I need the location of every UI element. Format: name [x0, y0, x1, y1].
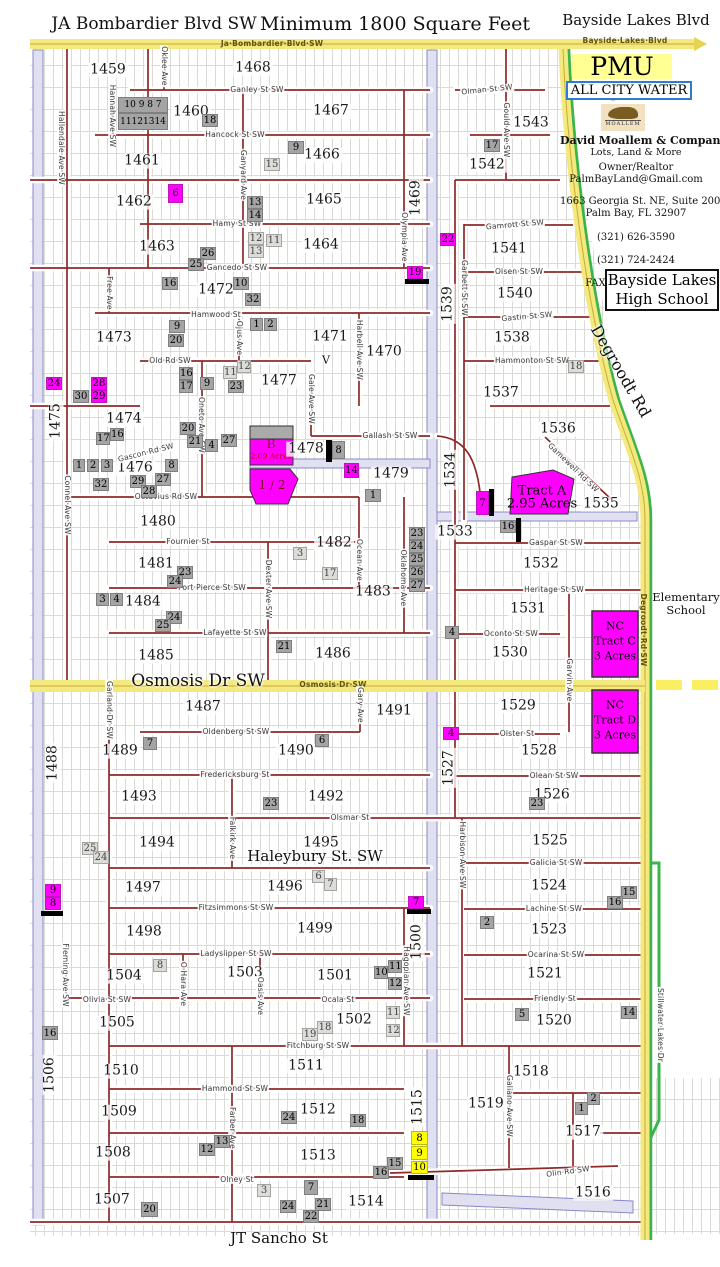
tract-c-l1: NC: [606, 621, 624, 634]
rail-crossing-bar: [408, 1175, 434, 1180]
rail-crossing-bar: [407, 909, 431, 914]
block-label-1518: 1518: [511, 1065, 551, 1080]
block-label-1525: 1525: [530, 834, 570, 849]
lot-chip: 23: [409, 527, 425, 540]
high-school-box: Bayside Lakes High School: [605, 269, 719, 311]
lot-chip: 15: [621, 886, 637, 899]
lot-chip: 21: [276, 640, 292, 653]
lot-chip: 27: [409, 579, 425, 592]
degroodt-big-label: Degroodt Rd: [587, 321, 655, 420]
street-label: Hammond·St·SW: [201, 1085, 269, 1093]
block-label-1523: 1523: [529, 923, 569, 938]
block-label-1532: 1532: [521, 557, 561, 572]
lot-chip: 17: [179, 380, 193, 393]
block-label-1498: 1498: [124, 925, 164, 940]
logo-word: MOALLEM: [605, 120, 641, 127]
block-label-1540: 1540: [495, 287, 535, 302]
street-label: Oconto·St·SW: [483, 630, 539, 638]
street-label: Gastin·St·SW: [500, 311, 554, 324]
block-label-1520: 1520: [534, 1014, 574, 1029]
lot-chip: 4: [110, 593, 123, 606]
lot-chip: 32: [245, 293, 261, 306]
block-label-1527: 1527: [442, 748, 457, 788]
lot-chip: 7: [143, 737, 157, 750]
lot-chip: 14: [621, 1006, 637, 1019]
block-label-1496: 1496: [265, 880, 305, 895]
lot-chip: 12: [237, 360, 251, 373]
street-label: Harbison·Ave·SW: [458, 820, 466, 889]
block-label-1513: 1513: [298, 1149, 338, 1164]
elementary-school-label: Elementary School: [646, 591, 720, 617]
lot-chip: 30: [73, 390, 89, 403]
street-label: Oklahoma·Ave: [399, 549, 407, 608]
block-label-1472: 1472: [196, 283, 236, 298]
lot-chip: 32: [93, 478, 109, 491]
street-label: Ocarina·St·SW: [527, 951, 585, 959]
lot-chip: 8: [153, 959, 167, 972]
lot-chip: 11: [266, 234, 282, 247]
street-label: Hannah·Ave·SW: [108, 84, 116, 148]
block-label-1462: 1462: [114, 195, 154, 210]
block-label-1464: 1464: [301, 238, 341, 253]
block-label-1487: 1487: [183, 700, 223, 715]
lot-chip: 17: [322, 567, 338, 580]
block-label-1542: 1542: [467, 158, 507, 173]
block-label-1521: 1521: [525, 967, 565, 982]
lot-chip: 24: [280, 1200, 296, 1213]
company-name: David Moallem & Companies: [560, 134, 712, 147]
lot-chip: 25: [155, 619, 171, 632]
street-label: Free·Ave: [105, 275, 113, 311]
moallem-logo: MOALLEM: [601, 104, 645, 131]
block-label-1541: 1541: [489, 242, 529, 257]
block-label-1529: 1529: [498, 699, 538, 714]
block-label-1524: 1524: [529, 879, 569, 894]
lot-chip: 10: [233, 277, 249, 290]
street-label: Fitchburg·St·SW: [286, 1042, 351, 1050]
street-label: Ocean·Ave: [355, 538, 363, 582]
street-label: Fleming·Ave·SW: [61, 942, 69, 1007]
tract-c-l2: Tract C: [594, 636, 636, 649]
block-label-1512: 1512: [298, 1103, 338, 1118]
block-label-1467: 1467: [311, 104, 351, 119]
lot-chip: 8: [332, 441, 345, 459]
lot-chip: 7: [304, 1180, 318, 1195]
lot-chip: 1: [73, 459, 85, 472]
street-label: Gale·Ave·SW: [307, 373, 315, 425]
street-label: Hamwood·St: [190, 311, 242, 319]
lot-chip: 27: [155, 473, 171, 486]
lot-chip: 24: [46, 377, 62, 390]
lot-chip: 4: [443, 727, 459, 740]
lot-chip: 3: [101, 459, 113, 472]
lot-chip: 12: [248, 232, 264, 245]
street-label: Fredericksburg·St: [200, 771, 271, 779]
street-label: Friendly·St: [533, 995, 577, 1003]
lot-chip: 12: [386, 1024, 400, 1037]
lot-chip: 10: [374, 966, 388, 979]
street-label: Falkirk·Ave: [228, 816, 236, 861]
street-label: Oasis·Ave: [256, 976, 264, 1016]
lot-chip: 8: [165, 459, 178, 472]
block-label-1471: 1471: [310, 330, 350, 345]
street-label: Old·Rd·SW: [148, 357, 191, 365]
lion-icon: [608, 107, 638, 119]
lot-chip: 12: [388, 977, 402, 990]
lot-chip: 7: [408, 896, 424, 909]
tract-d-l1: NC: [606, 700, 624, 713]
lot-chip: 16: [162, 277, 178, 290]
street-label: Stillwater·Lakes·Dr: [656, 987, 664, 1063]
block-label-1534: 1534: [444, 450, 459, 490]
lot-chip: 5: [515, 1008, 529, 1021]
lot-chip: 13: [214, 1135, 230, 1148]
lot-chip: 9: [169, 320, 185, 333]
owner-realtor: Owner/Realtor: [560, 162, 712, 173]
lot-chip: 16: [607, 896, 623, 909]
lot-chip: 6: [168, 184, 183, 203]
block-label-1519: 1519: [466, 1097, 506, 1112]
block-label-1510: 1510: [101, 1064, 141, 1079]
block-label-1463: 1463: [137, 240, 177, 255]
block-label-1473: 1473: [94, 331, 134, 346]
block-label-1483: 1483: [353, 585, 393, 600]
block-label-1535: 1535: [581, 497, 621, 512]
lot-chip: 3: [96, 593, 109, 606]
street-label: Oklee·Ave: [160, 45, 168, 87]
lot-chip: 10 9 8 7: [118, 97, 168, 113]
lot-chip: 3: [293, 547, 307, 560]
email: PalmBayLand@Gmail.com: [560, 174, 712, 185]
street-label: Fort·Pierce·St·SW: [177, 584, 247, 592]
block-label-1491: 1491: [374, 704, 414, 719]
lot-chip: 2: [87, 459, 99, 472]
lot-chip: 11121314: [118, 113, 168, 130]
lot-chip: 29: [91, 390, 107, 403]
street-label: Olsen·St·SW: [494, 268, 544, 276]
lot-chip: 7: [324, 878, 337, 891]
block-label-1468: 1468: [233, 61, 273, 76]
lot-chip: 26: [409, 566, 425, 579]
lot-chip: 24: [167, 575, 183, 588]
street-label: Ja·Bombardier·Blvd·SW: [220, 40, 324, 48]
block-label-1515: 1515: [411, 1087, 426, 1127]
lot-chip: 15: [387, 1157, 403, 1170]
lot-chip: 24: [409, 540, 425, 553]
street-label: Galicia·St·SW: [529, 859, 584, 867]
lot-chip: 16: [373, 1166, 389, 1179]
header-bayside-lakes: Bayside Lakes Blvd: [562, 11, 709, 29]
street-label: Olney·St: [219, 1176, 254, 1184]
lot-chip: 12: [199, 1143, 215, 1156]
block-label-1538: 1538: [492, 331, 532, 346]
block-label-1490: 1490: [276, 744, 316, 759]
lot-chip: 18: [317, 1021, 333, 1034]
lot-chip: 1: [365, 489, 381, 502]
lot-chip: 1: [575, 1102, 588, 1115]
block-label-1530: 1530: [490, 646, 530, 661]
block-label-1499: 1499: [295, 922, 335, 937]
lot-chip: 22: [303, 1210, 319, 1223]
lot-chip: 18: [568, 360, 584, 373]
lot-chip: 20: [180, 422, 196, 435]
lot-chip: 18: [202, 114, 218, 127]
plat-map: JA Bombardier Blvd SW Minimum 1800 Squar…: [0, 0, 720, 1267]
block-label-1528: 1528: [519, 744, 559, 759]
block-label-1488: 1488: [46, 743, 61, 783]
block-label-1461: 1461: [122, 154, 162, 169]
street-label: Gould·Ave·SW: [502, 101, 510, 158]
osmosis-big-label: Osmosis Dr SW: [131, 671, 265, 691]
tract-d-l2: Tract D: [594, 715, 636, 728]
block-label-1504: 1504: [104, 969, 144, 984]
block-label-1511: 1511: [286, 1059, 326, 1074]
street-label: Olster·St: [499, 730, 535, 738]
street-label: Ojus·Ave: [235, 320, 243, 356]
street-label: Connel·Ave·SW: [63, 474, 71, 535]
block-label-1485: 1485: [136, 649, 176, 664]
lot-chip: 8: [45, 897, 61, 910]
block-label-1493: 1493: [119, 790, 159, 805]
block-label-1507: 1507: [92, 1193, 132, 1208]
rail-crossing-bar: [326, 440, 332, 462]
street-label: O·Hara·Ave: [179, 961, 187, 1007]
lot-chip: 8: [411, 1131, 428, 1145]
rail-crossing-bar: [489, 489, 494, 516]
v-label: V: [322, 354, 330, 367]
jt-sancho-label: JT Sancho St: [230, 1229, 328, 1247]
lot-chip: 22: [440, 233, 456, 246]
tract-c-l3: 3 Acres: [594, 651, 636, 664]
street-label: Hagopian·Ave·SW: [402, 945, 410, 1016]
block-label-1502: 1502: [334, 1013, 374, 1028]
block-label-1481: 1481: [136, 557, 176, 572]
block-label-1531: 1531: [508, 602, 548, 617]
block-label-1539: 1539: [441, 284, 456, 324]
street-label: Gary·Ave: [356, 686, 364, 724]
lot-chip: 23: [529, 797, 545, 810]
lot-chip: 16: [500, 520, 516, 533]
block-label-1514: 1514: [346, 1195, 386, 1210]
street-label: Fitzsimmons·St·SW: [198, 904, 275, 912]
lot-chip: 11: [388, 960, 402, 973]
lot-chip: 6: [315, 734, 329, 747]
lot-chip: 11: [223, 366, 237, 379]
block-label-1465: 1465: [304, 193, 344, 208]
street-label: Gamrott·St·SW: [485, 218, 546, 231]
block-label-1479: 1479: [371, 467, 411, 482]
lot-chip: 10: [411, 1161, 428, 1174]
block-label-1509: 1509: [99, 1105, 139, 1120]
block-label-1484: 1484: [123, 595, 163, 610]
street-label: Garland·Dr·SW: [105, 680, 113, 740]
street-label: Olsmar·St: [330, 814, 371, 822]
block-label-1508: 1508: [93, 1146, 133, 1161]
rail-crossing-bar: [516, 518, 521, 542]
street-label: Harbell·Ave·SW: [355, 319, 363, 381]
street-label: Gaspar·St·SW: [528, 539, 584, 547]
pmu-title: PMU 31: [572, 54, 672, 79]
lot-chip: 1: [250, 318, 263, 331]
lot-chip: 9: [411, 1146, 428, 1160]
block-label-1536: 1536: [538, 422, 578, 437]
lot-chip: 18: [350, 1114, 366, 1127]
street-label: Olin·Rd·SW: [545, 1165, 591, 1180]
block-label-1500: 1500: [410, 922, 425, 962]
block-label-1480: 1480: [138, 515, 178, 530]
lot-chip: 28: [141, 485, 157, 498]
lot-chip: 20: [141, 1202, 158, 1217]
header-minimum-sqft: Minimum 1800 Square Feet: [260, 13, 530, 35]
block-label-1495: 1495: [301, 836, 341, 851]
street-label: Hancock·St·SW: [204, 131, 265, 139]
street-label: Ganley·St·SW: [229, 86, 284, 94]
street-label: Gancedo·St·SW: [206, 264, 269, 272]
lot-chip: 2: [587, 1092, 600, 1105]
lot-chip: 17: [96, 432, 110, 445]
street-label: Fournier·St: [165, 538, 210, 546]
lot-chip: 4: [205, 439, 218, 452]
block-label-1516: 1516: [573, 1186, 613, 1201]
street-label: Olean·St·SW: [529, 772, 580, 780]
block-label-1506: 1506: [43, 1055, 58, 1095]
block-label-1470: 1470: [364, 345, 404, 360]
block-label-1517: 1517: [563, 1125, 603, 1140]
lot-chip: 23: [263, 797, 279, 810]
street-label: Lafayette·St·SW: [202, 629, 267, 637]
lot-chip: 17: [484, 139, 500, 152]
block-label-1537: 1537: [481, 386, 521, 401]
lot-chip: 9: [200, 377, 214, 390]
block-label-1494: 1494: [137, 836, 177, 851]
block-label-1474: 1474: [104, 412, 144, 427]
lot-chip: 19: [302, 1028, 318, 1041]
block-label-1501: 1501: [315, 969, 355, 984]
lot-chip: 28: [91, 377, 107, 390]
block-label-1505: 1505: [97, 1016, 137, 1031]
header-ja-bombardier: JA Bombardier Blvd SW: [51, 14, 256, 34]
street-label: Olman·St·SW: [460, 83, 514, 97]
block-label-1482: 1482: [314, 536, 354, 551]
block-label-1466: 1466: [302, 148, 342, 163]
lot-chip: 25: [409, 553, 425, 566]
street-label: Garvin·Ave: [565, 658, 573, 703]
block-label-1486: 1486: [313, 647, 353, 662]
street-label: Hammonton·St·SW: [494, 357, 570, 365]
lot-chip: 13: [248, 245, 264, 258]
lot-chip: 23: [228, 380, 244, 393]
block-label-1497: 1497: [123, 881, 163, 896]
block-label-1492: 1492: [306, 790, 346, 805]
block-label-1478: 1478: [286, 442, 326, 457]
lot-chip: 19: [407, 266, 423, 279]
street-label: Gallash·St·SW: [361, 432, 418, 440]
high-school-line1: Bayside Lakes: [607, 271, 717, 290]
lot-chip: 9: [45, 884, 61, 897]
street-label: Heritage·St·SW: [523, 586, 585, 594]
lot-chip: 14: [344, 463, 359, 478]
street-label: Ganyard·Ave: [239, 149, 247, 201]
street-label: Olivia·St·SW: [82, 996, 132, 1004]
lot-chip: 7: [476, 491, 489, 515]
lot-chip: 2: [480, 916, 494, 929]
street-label: Galiano·Ave·SW: [505, 1074, 513, 1138]
lot-chip: 24: [281, 1111, 297, 1124]
street-label: Lachine·St·SW: [525, 905, 583, 913]
rail-crossing-bar: [405, 279, 429, 284]
lot-chip: 9: [288, 141, 304, 154]
lot-chip: 14: [247, 209, 263, 222]
block-label-1489: 1489: [100, 744, 140, 759]
street-label: Garbett·St·SW: [460, 259, 468, 317]
lot-chip: 13: [247, 196, 263, 209]
address-line2: Palm Bay, FL 32907: [560, 208, 712, 219]
block-label-1543: 1543: [511, 116, 551, 131]
lot-chip: 11: [386, 1006, 400, 1019]
lot-chip: 27: [221, 434, 237, 447]
street-label: Olympia·Ave: [400, 211, 408, 263]
street-label: Ladyslipper·St·SW: [199, 950, 272, 958]
block-label-1459: 1459: [88, 63, 128, 78]
street-label: Bayside·Lakes·Blvd: [582, 37, 669, 45]
lot-chip: 24: [93, 851, 109, 864]
block-label-1469: 1469: [409, 178, 424, 218]
lot-chip: 25: [188, 258, 204, 271]
lot-chip: 16: [179, 367, 193, 380]
street-label: Dexter·Ave·SW: [264, 559, 272, 620]
street-label: Degroodt·Rd·SW: [639, 593, 647, 668]
block-label-1533: 1533: [435, 525, 475, 540]
lot-chip: 4: [445, 626, 459, 639]
high-school-line2: High School: [607, 290, 717, 309]
lot-chip: 20: [168, 334, 184, 347]
lot-chip: 3: [257, 1184, 271, 1197]
phone-1: (321) 626-3590: [560, 232, 712, 243]
tract-d-l3: 3 Acres: [594, 730, 636, 743]
phone-2: (321) 724-2424: [560, 255, 712, 266]
lot-chip: 16: [110, 428, 124, 441]
lot-chip: 2: [264, 318, 277, 331]
map-labels: JA Bombardier Blvd SW Minimum 1800 Squar…: [0, 0, 720, 1267]
tract-b-name: B: [267, 438, 276, 452]
lot-chip: 21: [187, 435, 203, 448]
block-label-1475: 1475: [49, 401, 64, 441]
tract-a-size: 2.95 Acres: [507, 498, 577, 513]
all-city-water-badge: ALL CITY WATER: [566, 81, 692, 100]
tract-b-lots: 1 / 2: [259, 479, 286, 493]
street-label: Oldenberg·St·SW: [202, 728, 271, 736]
street-label: Hallendale·Ave·SW: [57, 110, 65, 186]
street-label: Ocala·St: [321, 996, 356, 1004]
lot-chip: 15: [264, 158, 280, 171]
lot-chip: 16: [42, 1026, 58, 1040]
rail-crossing-bar: [41, 911, 63, 916]
address-line1: 1663 Georgia St. NE, Suite 200: [560, 196, 712, 207]
company-tagline: Lots, Land & More: [560, 147, 712, 158]
block-label-1477: 1477: [259, 374, 299, 389]
